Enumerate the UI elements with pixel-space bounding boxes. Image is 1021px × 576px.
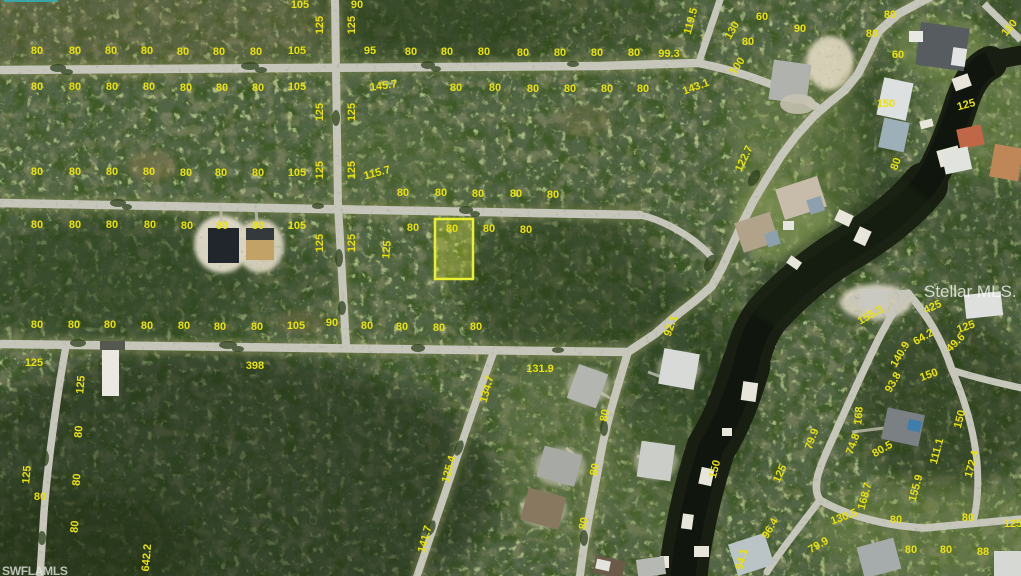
svg-text:105: 105 [291,0,309,11]
svg-text:80: 80 [433,322,445,334]
svg-text:125: 125 [346,161,358,179]
svg-text:80: 80 [435,187,447,199]
svg-text:125: 125 [74,375,88,394]
svg-text:80: 80 [472,188,484,200]
svg-text:125: 125 [346,16,358,34]
svg-text:80: 80 [216,82,228,94]
svg-text:80: 80 [177,46,189,58]
svg-text:80: 80 [71,473,84,486]
svg-text:105: 105 [288,81,306,93]
svg-text:80: 80 [214,321,226,333]
svg-text:80: 80 [144,219,156,231]
svg-text:80: 80 [143,81,155,93]
svg-text:80: 80 [470,321,482,333]
svg-text:80: 80 [141,45,153,57]
svg-text:80: 80 [31,45,43,57]
svg-text:80: 80 [940,544,952,556]
svg-text:398: 398 [246,360,264,372]
svg-text:125: 125 [346,103,358,121]
svg-text:125: 125 [1004,518,1021,530]
svg-text:80: 80 [397,187,409,199]
svg-text:60: 60 [756,11,768,23]
svg-text:80: 80 [742,36,754,48]
svg-text:80: 80 [483,223,495,235]
svg-text:131.9: 131.9 [526,363,554,375]
svg-text:80: 80 [104,319,116,331]
svg-text:125: 125 [314,234,326,252]
svg-text:80: 80 [250,46,262,58]
svg-text:80: 80 [517,47,529,59]
svg-text:80: 80 [628,47,640,59]
svg-text:80: 80 [866,28,878,40]
svg-text:80: 80 [31,81,43,93]
svg-text:80: 80 [554,47,566,59]
svg-text:80: 80 [884,9,896,21]
svg-text:80: 80 [527,83,539,95]
svg-text:80: 80 [68,319,80,331]
svg-text:80: 80 [105,45,117,57]
svg-text:90: 90 [794,23,806,35]
svg-text:168: 168 [852,406,866,425]
svg-text:80: 80 [905,544,917,556]
svg-text:80: 80 [34,491,46,503]
svg-text:80: 80 [591,47,603,59]
svg-text:80: 80 [69,219,81,231]
svg-text:125: 125 [25,357,43,369]
svg-text:125: 125 [380,240,394,259]
svg-text:105: 105 [288,220,306,232]
svg-text:80: 80 [69,81,81,93]
svg-text:80: 80 [143,166,155,178]
svg-text:80: 80 [106,166,118,178]
svg-text:80: 80 [31,166,43,178]
svg-text:125: 125 [346,234,358,252]
svg-text:90: 90 [351,0,363,11]
svg-text:105: 105 [288,167,306,179]
svg-text:125: 125 [20,465,34,484]
svg-text:80: 80 [441,46,453,58]
svg-text:80: 80 [588,462,602,476]
svg-text:105: 105 [287,320,305,332]
svg-text:125: 125 [314,161,326,179]
svg-text:80: 80 [251,321,263,333]
svg-text:80: 80 [520,224,532,236]
svg-text:Stellar MLS.: Stellar MLS. [924,282,1017,301]
svg-text:80: 80 [106,81,118,93]
svg-text:80: 80 [180,167,192,179]
svg-text:105: 105 [288,45,306,57]
svg-text:80: 80 [547,189,559,201]
svg-text:125: 125 [314,103,326,121]
svg-text:80: 80 [601,83,613,95]
svg-text:80: 80 [890,514,902,526]
svg-text:80: 80 [141,320,153,332]
svg-text:80: 80 [69,45,81,57]
svg-text:80: 80 [489,82,501,94]
svg-text:99.3: 99.3 [658,48,679,60]
svg-text:150: 150 [877,98,895,110]
svg-text:80: 80 [252,220,264,232]
svg-text:80: 80 [178,320,190,332]
svg-text:80: 80 [446,223,458,235]
svg-text:80: 80 [450,82,462,94]
svg-text:80: 80 [73,425,86,438]
svg-text:80: 80 [181,220,193,232]
svg-text:80: 80 [577,516,591,530]
svg-text:80: 80 [31,319,43,331]
svg-text:88: 88 [977,546,989,558]
svg-text:642.2: 642.2 [140,544,154,572]
svg-text:80: 80 [252,82,264,94]
svg-text:80: 80 [180,82,192,94]
svg-text:80: 80 [510,188,522,200]
svg-text:80: 80 [213,46,225,58]
svg-text:80: 80 [962,512,974,524]
svg-text:80: 80 [396,321,408,333]
svg-text:95: 95 [364,45,376,57]
svg-text:SWFLAMLS: SWFLAMLS [2,564,68,576]
svg-text:80: 80 [407,222,419,234]
svg-text:80: 80 [405,46,417,58]
svg-text:80: 80 [478,46,490,58]
svg-text:80: 80 [69,166,81,178]
svg-text:80: 80 [564,83,576,95]
svg-text:80: 80 [598,408,612,422]
svg-text:125: 125 [314,16,326,34]
svg-text:80: 80 [215,167,227,179]
svg-text:80: 80 [106,219,118,231]
svg-text:80: 80 [252,167,264,179]
svg-text:90: 90 [326,317,338,329]
svg-text:80: 80 [216,220,228,232]
svg-text:60: 60 [892,49,904,61]
svg-text:80: 80 [637,83,649,95]
svg-text:80: 80 [361,320,373,332]
svg-text:80: 80 [31,219,43,231]
svg-text:80: 80 [69,520,82,533]
